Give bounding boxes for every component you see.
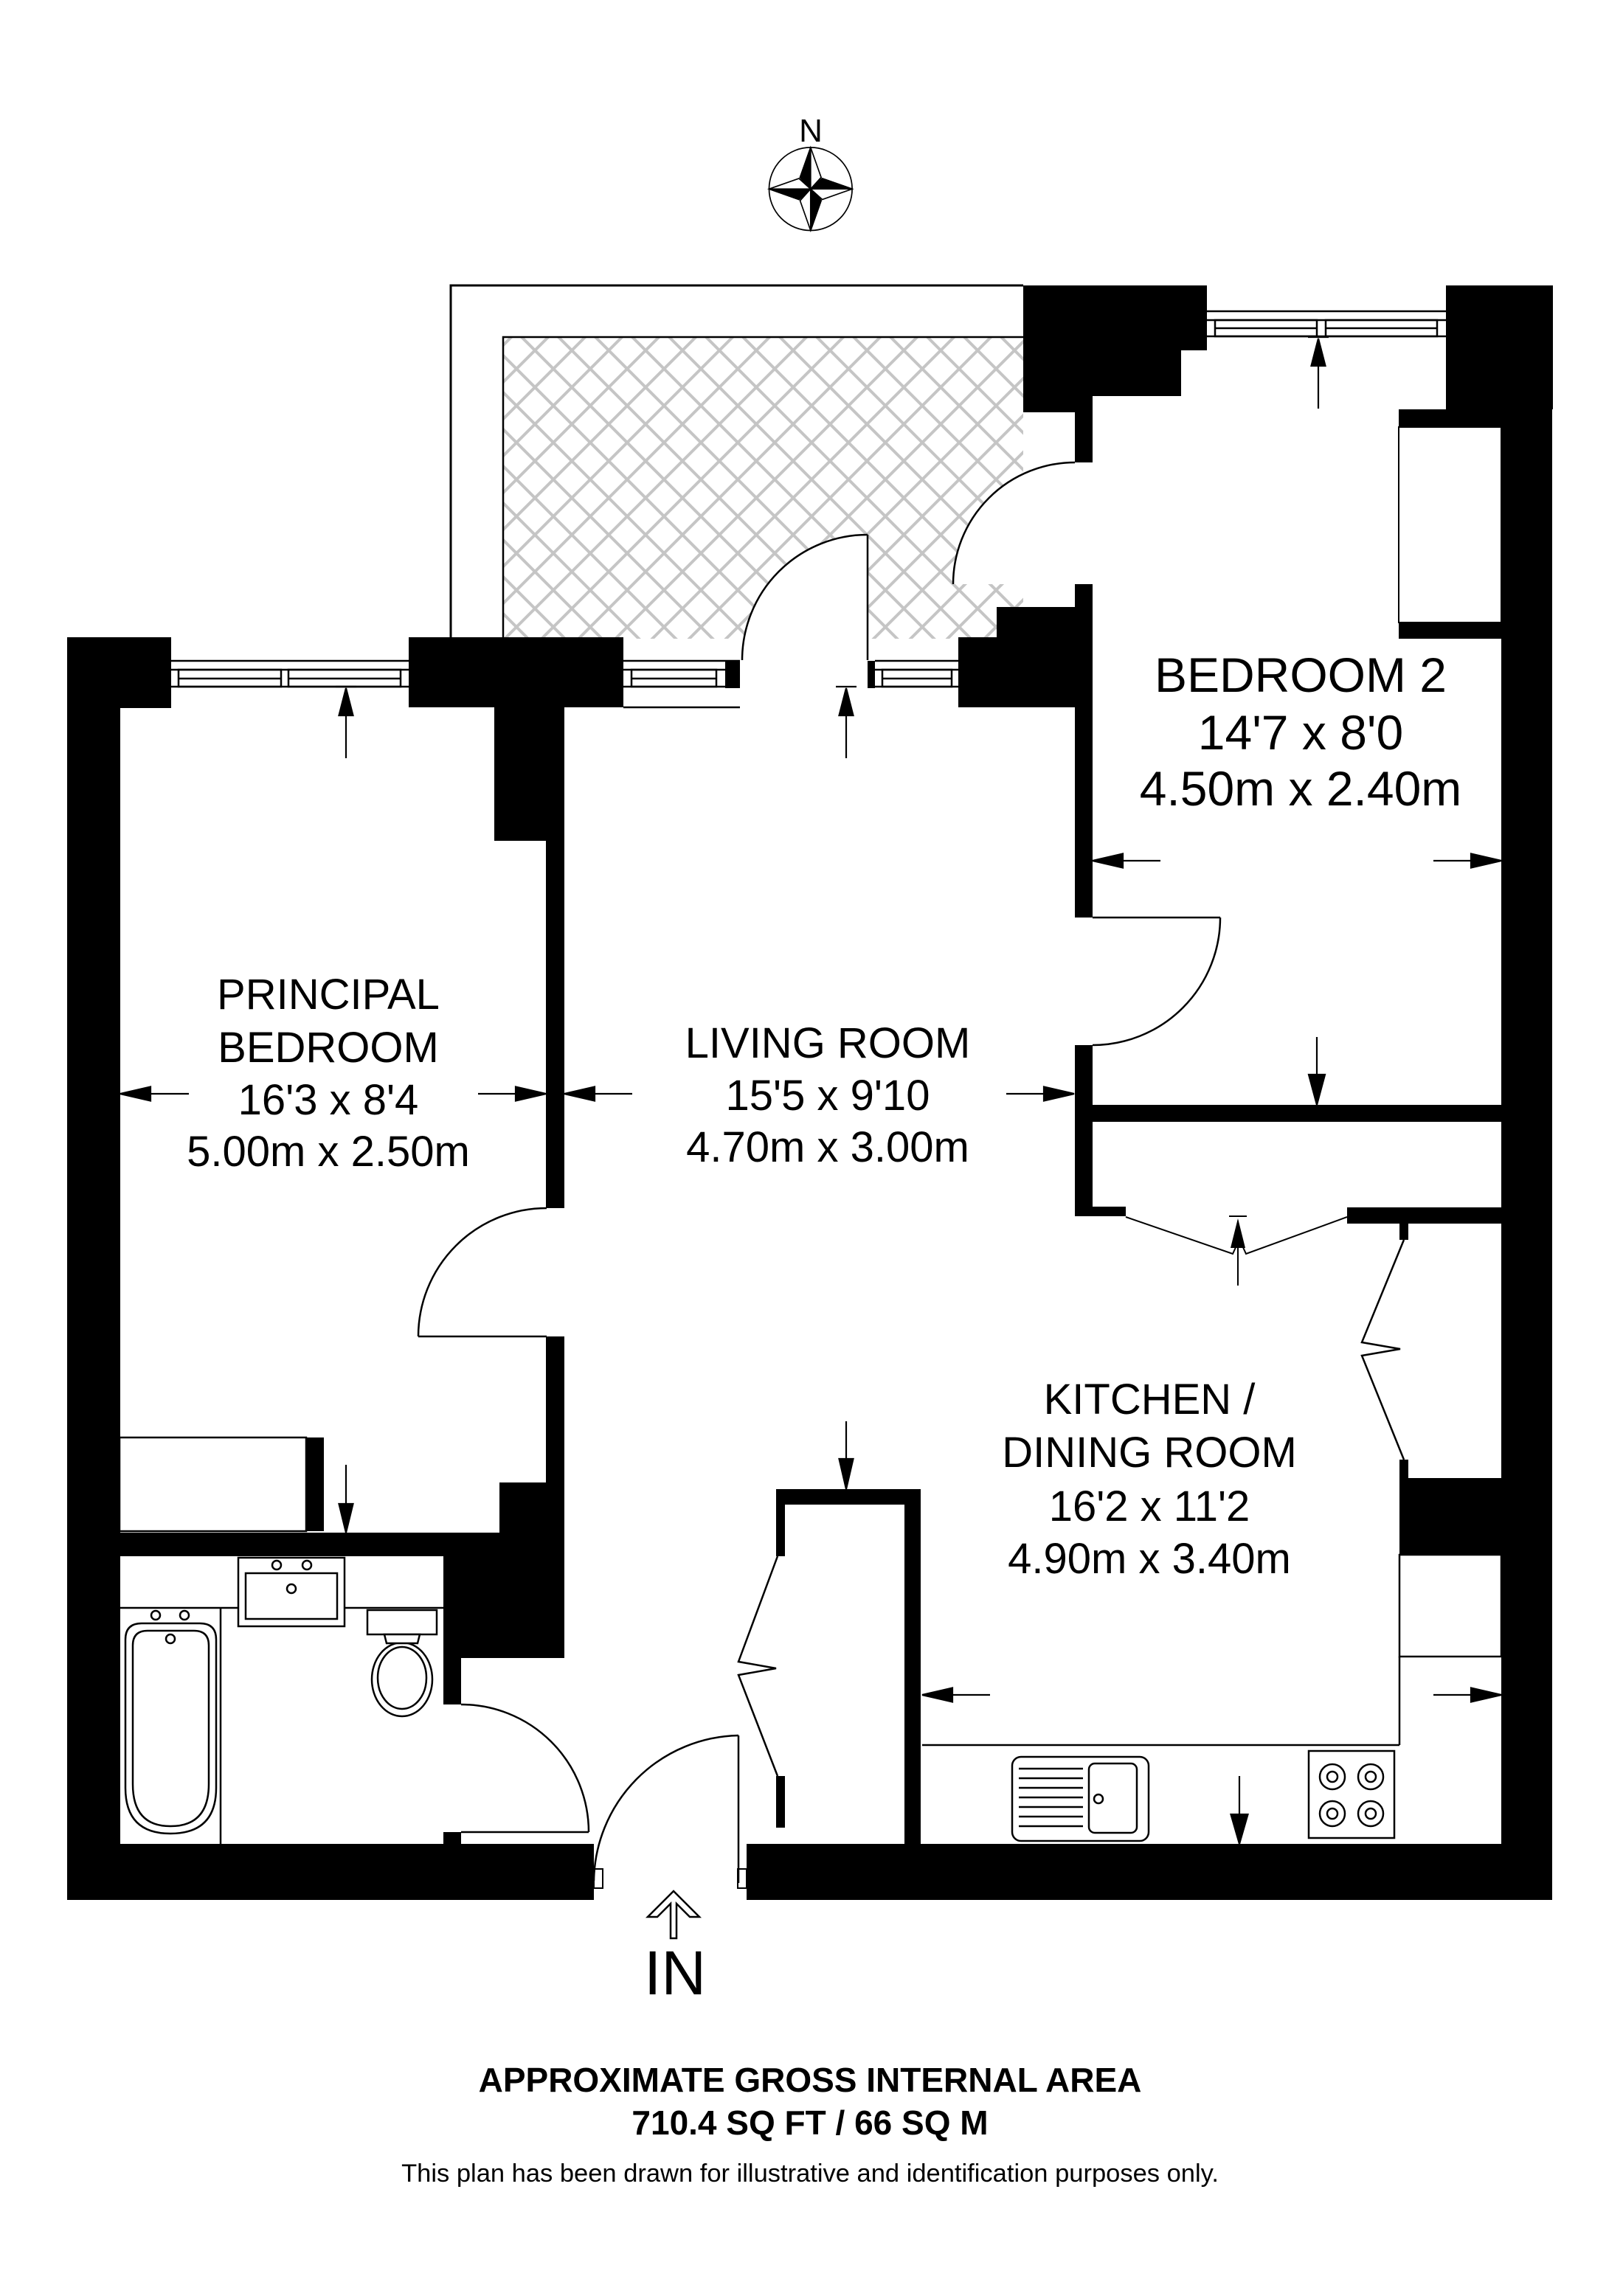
svg-text:16'3 x 8'4: 16'3 x 8'4 (238, 1076, 419, 1124)
svg-text:4.50m x 2.40m: 4.50m x 2.40m (1140, 761, 1462, 816)
svg-text:15'5 x 9'10: 15'5 x 9'10 (726, 1072, 930, 1120)
svg-text:BEDROOM 2: BEDROOM 2 (1155, 648, 1447, 702)
svg-text:14'7 x 8'0: 14'7 x 8'0 (1198, 705, 1403, 760)
svg-text:5.00m x 2.50m: 5.00m x 2.50m (187, 1128, 470, 1176)
svg-text:4.90m x 3.40m: 4.90m x 3.40m (1008, 1535, 1291, 1583)
svg-text:IN: IN (644, 1938, 706, 2008)
svg-text:This plan has been drawn for i: This plan has been drawn for illustrativ… (401, 2160, 1219, 2188)
svg-text:710.4 SQ FT / 66 SQ M: 710.4 SQ FT / 66 SQ M (631, 2103, 988, 2142)
svg-text:DINING ROOM: DINING ROOM (1002, 1429, 1297, 1477)
svg-text:PRINCIPAL: PRINCIPAL (217, 971, 440, 1019)
svg-text:LIVING ROOM: LIVING ROOM (685, 1019, 971, 1067)
svg-text:APPROXIMATE GROSS INTERNAL ARE: APPROXIMATE GROSS INTERNAL AREA (479, 2061, 1142, 2099)
svg-text:N: N (799, 113, 823, 149)
svg-text:KITCHEN /: KITCHEN / (1044, 1376, 1256, 1423)
svg-text:BEDROOM: BEDROOM (218, 1024, 439, 1072)
svg-text:4.70m x 3.00m: 4.70m x 3.00m (686, 1123, 969, 1171)
svg-text:16'2 x 11'2: 16'2 x 11'2 (1049, 1482, 1250, 1530)
